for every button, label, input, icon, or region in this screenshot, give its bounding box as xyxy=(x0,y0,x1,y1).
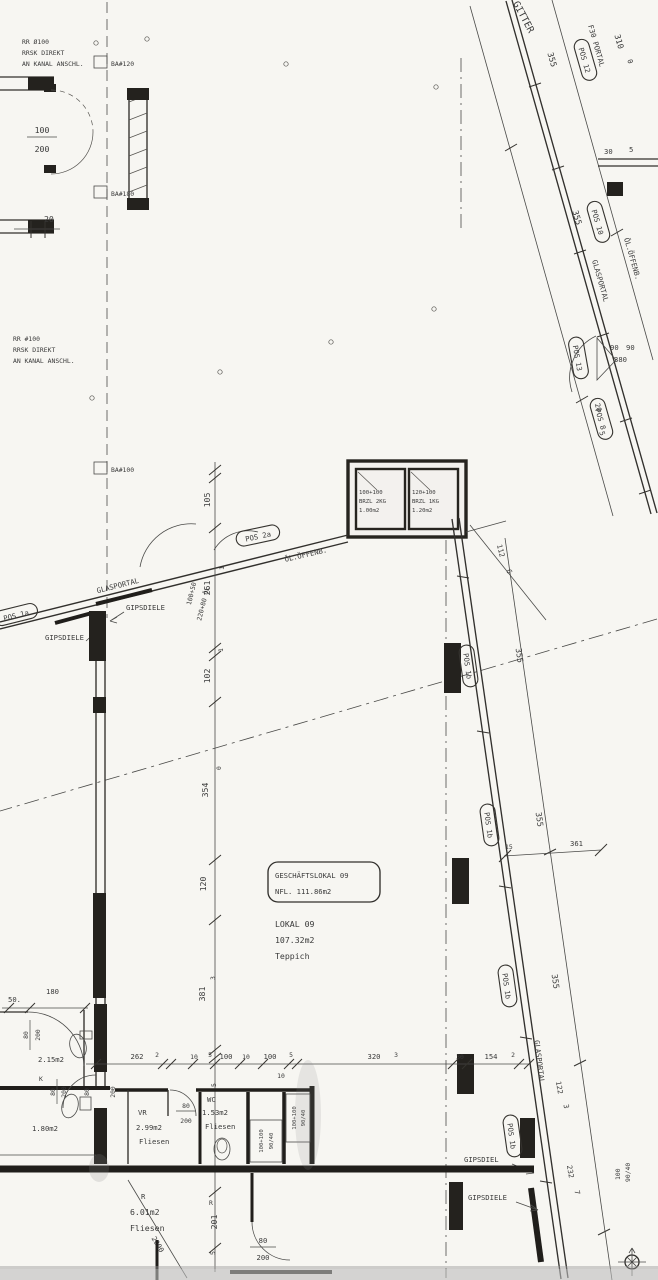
label-vr: VR xyxy=(138,1108,147,1117)
room-floor: Teppich xyxy=(275,951,310,961)
vdim-261: 261 xyxy=(202,581,212,596)
dim-355-r3: 355 xyxy=(550,973,562,989)
vdim-381: 381 xyxy=(197,987,207,1002)
dim-90-a: 90 xyxy=(610,343,619,352)
label-oeffenb-entrance: ÖL.ÖFFENB. xyxy=(284,545,328,564)
label-glasportal-top: GLASPORTAL xyxy=(590,259,611,303)
top-left-door-detail: RR Ø100 RRSK DIREKT AN KANAL ANSCHL. BA#… xyxy=(0,38,149,474)
vdim-0: 0 xyxy=(215,766,223,770)
label-gipsdiele-b: GIPSDIELE xyxy=(45,633,84,642)
door-dim-200: 200 xyxy=(35,144,50,154)
vdim-354: 354 xyxy=(200,783,210,798)
frac-200-rot: 200 xyxy=(34,1029,42,1041)
label-ba120: BA#120 xyxy=(111,60,134,68)
dim-5-facade: 5 xyxy=(597,430,607,437)
shaft-left-line3: 1.00m2 xyxy=(359,508,379,514)
vdim-1a: 1 xyxy=(218,566,226,570)
hdim-10b: 10 xyxy=(242,1053,250,1061)
shaft-left-line1: 100+100 xyxy=(359,490,383,496)
dim-310: 310 xyxy=(612,33,626,50)
shaft-boxes: 100+100 BRZL 2KG 1.00m2 120+100 BRZL 1KG… xyxy=(348,461,506,537)
glass-facade-top-right: GITTER F30 PORTAL 310 0 355 POS 12 355 P… xyxy=(470,0,658,620)
room-area: 107.32m2 xyxy=(275,935,315,945)
dim-5-top: 5 xyxy=(629,145,633,154)
k-80: 80 xyxy=(49,1088,57,1096)
shaft-label-9040: 90/40 xyxy=(624,1163,632,1182)
shaft-label-100: 100 xyxy=(614,1168,622,1180)
door-dim-100: 100 xyxy=(35,125,50,135)
vdim-3: 3 xyxy=(209,976,217,980)
area-wc: 1.53m2 xyxy=(202,1108,228,1117)
vdim-105: 105 xyxy=(202,493,212,508)
hdim-30: 30 xyxy=(456,1053,464,1061)
area-180: 1.80m2 xyxy=(32,1124,58,1133)
door-200b: 200 xyxy=(257,1253,270,1262)
dim-30-top: 30 xyxy=(604,147,613,156)
room-lokal: LOKAL 09 xyxy=(275,919,315,929)
note-rr100b-line2: RRSK DIREKT xyxy=(13,346,55,354)
room-nfl: NFL. 111.86m2 xyxy=(275,887,331,896)
dim-180: 180 xyxy=(46,987,59,996)
hdim-10-below: 10 xyxy=(277,1072,285,1080)
hdim-320: 320 xyxy=(368,1052,381,1061)
label-gipsdiele-a: GIPSDIELE xyxy=(126,603,165,612)
hdim-100b: 100 xyxy=(264,1052,277,1061)
dim-355-a: 355 xyxy=(545,51,559,68)
note-rr100-line3: AN KANAL ANSCHL. xyxy=(22,60,84,68)
vdim-5b: 5 xyxy=(209,1251,217,1255)
hdim-5a: 5 xyxy=(208,1051,212,1059)
pos-1b-tag-4: POS 1b xyxy=(502,1114,523,1158)
dim-232-s7: 7 xyxy=(573,1189,583,1195)
dim-232: 232 xyxy=(565,1164,576,1178)
shaft-right-line1: 120+100 xyxy=(412,490,436,496)
dim-355-r1: 355 xyxy=(514,647,526,663)
hdim-2a: 2 xyxy=(155,1051,159,1059)
hdim-154: 154 xyxy=(485,1052,498,1061)
dim-361: 361 xyxy=(570,839,583,848)
floor-vr: Fliesen xyxy=(139,1137,169,1146)
label-ba180: BA#180 xyxy=(111,190,134,198)
note-rr100-line2: RRSK DIREKT xyxy=(22,49,64,57)
dim-0: 0 xyxy=(625,58,635,65)
pos-2a-tag: POS 2a xyxy=(235,524,281,548)
note-rr100b-line1: RR #100 xyxy=(13,335,40,343)
shaft-right-line2: BRZL 1KG xyxy=(412,499,440,505)
label-glasportal-right: GLASPORTAL xyxy=(532,1040,546,1084)
label-gipsdiel: GIPSDIEL xyxy=(464,1155,499,1164)
vdim-1b: 1 xyxy=(217,648,225,652)
label-ba100: BA#100 xyxy=(111,466,134,474)
dim-112: 112 xyxy=(495,543,507,558)
area-215: 2.15m2 xyxy=(38,1055,64,1064)
dim-15: 15 xyxy=(505,843,513,851)
wd-200: 200 xyxy=(109,1086,117,1098)
entrance-glass-front: POS 1a GLASPORTAL POS 2a ÖL.ÖFFENB. 100+… xyxy=(0,524,348,642)
room-labels: GESCHÄFTSLOKAL 09 NFL. 111.86m2 LOKAL 09… xyxy=(268,862,380,961)
dim-380: 380 xyxy=(614,355,627,364)
hdim-262: 262 xyxy=(131,1052,144,1061)
area-vr: 2.99m2 xyxy=(136,1123,162,1132)
note-rr100b-line3: AN KANAL ANSCHL. xyxy=(13,357,75,365)
door-80b: 80 xyxy=(259,1236,268,1245)
hdim-10a: 10 xyxy=(190,1053,198,1061)
floor-wc: Fliesen xyxy=(205,1122,235,1131)
hdim-3: 3 xyxy=(394,1051,398,1059)
shaft-right-line3: 1.20m2 xyxy=(412,508,432,514)
floor-plan-drawing: RR Ø100 RRSK DIREKT AN KANAL ANSCHL. BA#… xyxy=(0,0,658,1280)
hdim-2b: 2 xyxy=(511,1051,515,1059)
door-dim-100-50: 100+50 xyxy=(185,581,198,605)
dim-90-b: 90 xyxy=(626,343,635,352)
label-gipsdiele-r: GIPSDIELE xyxy=(468,1193,507,1202)
pos-1b-tag-2: POS 1b xyxy=(479,803,500,847)
label-oeffenb-top: ÖL.ÖFFENB. xyxy=(622,237,643,281)
room-title: GESCHÄFTSLOKAL 09 xyxy=(275,871,349,880)
wd-80: 80 xyxy=(83,1088,91,1096)
frac-80-rot: 80 xyxy=(22,1031,30,1039)
pos-10-tag: POS 10 xyxy=(585,200,611,245)
hdim-100a: 100 xyxy=(220,1052,233,1061)
vdim-5a: 5 xyxy=(210,1083,218,1087)
vdim-120: 120 xyxy=(198,877,208,892)
label-wc: WC xyxy=(207,1095,216,1104)
pos-1a-tag: POS 1a xyxy=(0,602,39,627)
vr-door-80: 80 xyxy=(182,1102,190,1110)
label-k: K xyxy=(39,1075,43,1083)
vdim-201: 201 xyxy=(209,1215,219,1230)
vdim-102: 102 xyxy=(202,669,212,684)
hdim-5b: 5 xyxy=(289,1051,293,1059)
dim-355-r2: 355 xyxy=(534,811,546,827)
pos-1b-tag-3: POS 1b xyxy=(497,964,518,1008)
scanned-floor-plan-page: RR Ø100 RRSK DIREKT AN KANAL ANSCHL. BA#… xyxy=(0,0,658,1280)
dim-355-b: 355 xyxy=(570,209,584,226)
dim-50: 50. xyxy=(8,995,21,1004)
svg-text:POS 1a: POS 1a xyxy=(2,608,29,623)
niche1-dim-b: 90/40 xyxy=(269,1133,275,1150)
shaft-left-line2: BRZL 2KG xyxy=(359,499,387,505)
svg-text:POS 1b: POS 1b xyxy=(482,812,495,839)
dim-122-s3: 3 xyxy=(562,1103,572,1109)
dim-122: 122 xyxy=(554,1080,565,1094)
left-wall xyxy=(89,611,107,1164)
vdim-R: R xyxy=(209,1199,213,1207)
niche1-dim-a: 100+100 xyxy=(259,1129,265,1153)
note-rr100-line1: RR Ø100 xyxy=(22,38,49,46)
vr-door-200: 200 xyxy=(180,1117,192,1125)
label-r: R xyxy=(141,1192,146,1201)
svg-text:POS 1b: POS 1b xyxy=(500,973,513,1000)
svg-text:POS 1b: POS 1b xyxy=(505,1123,518,1150)
